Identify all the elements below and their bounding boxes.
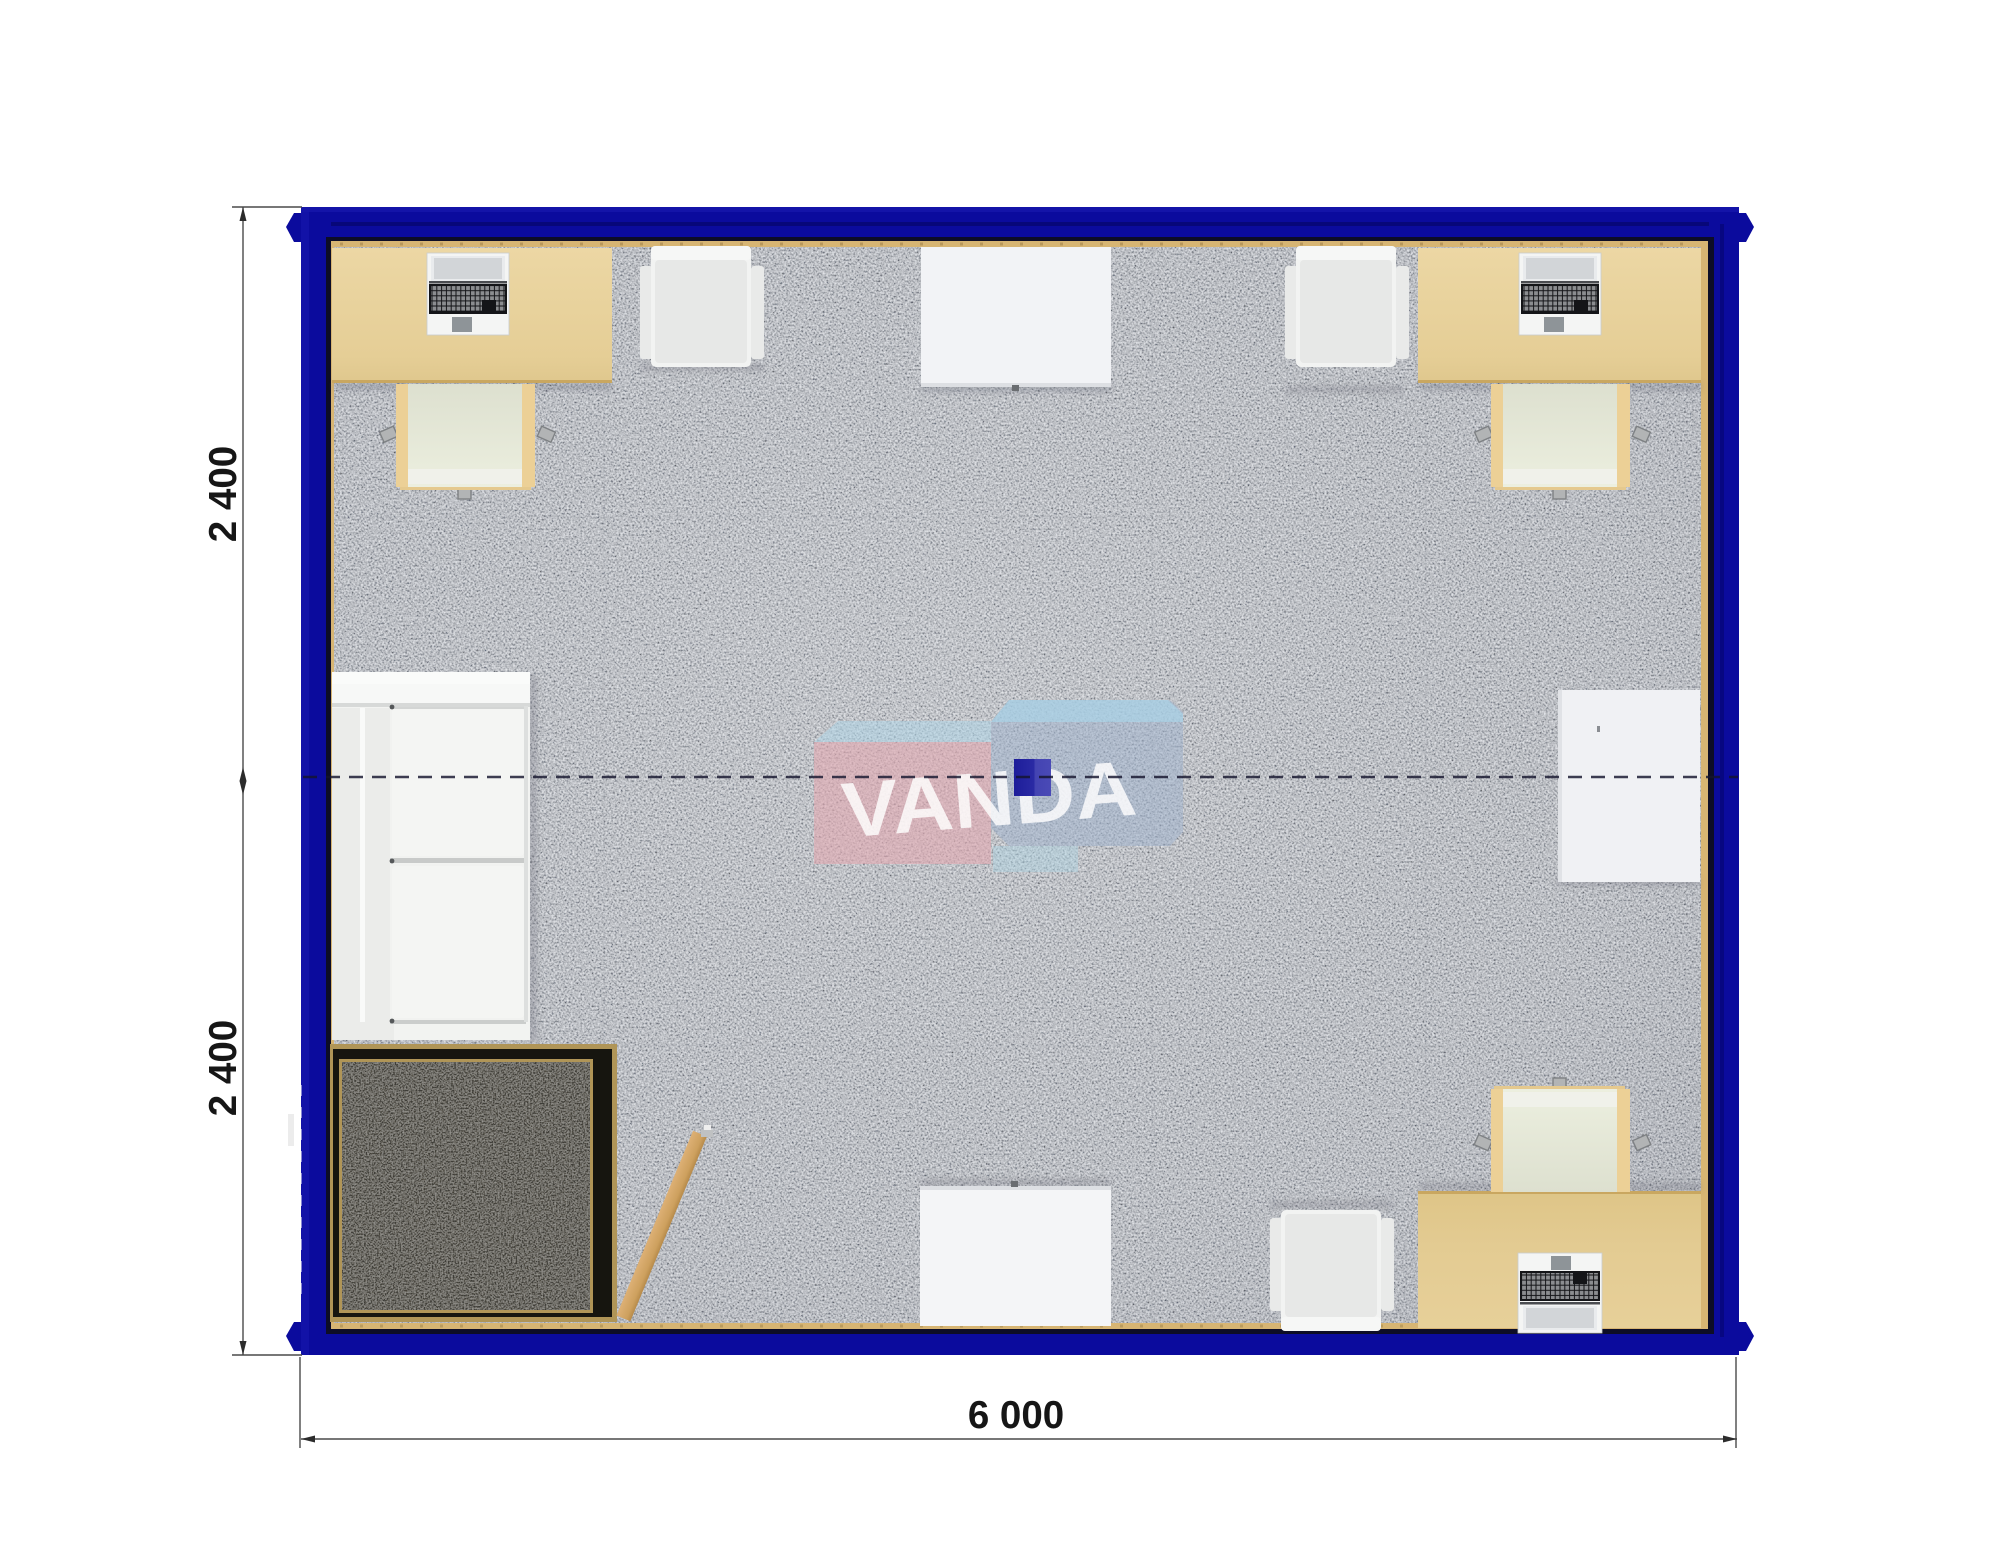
svg-text:2 400: 2 400 <box>202 446 245 542</box>
svg-text:6 000: 6 000 <box>968 1394 1064 1437</box>
svg-text:2 400: 2 400 <box>202 1020 245 1116</box>
